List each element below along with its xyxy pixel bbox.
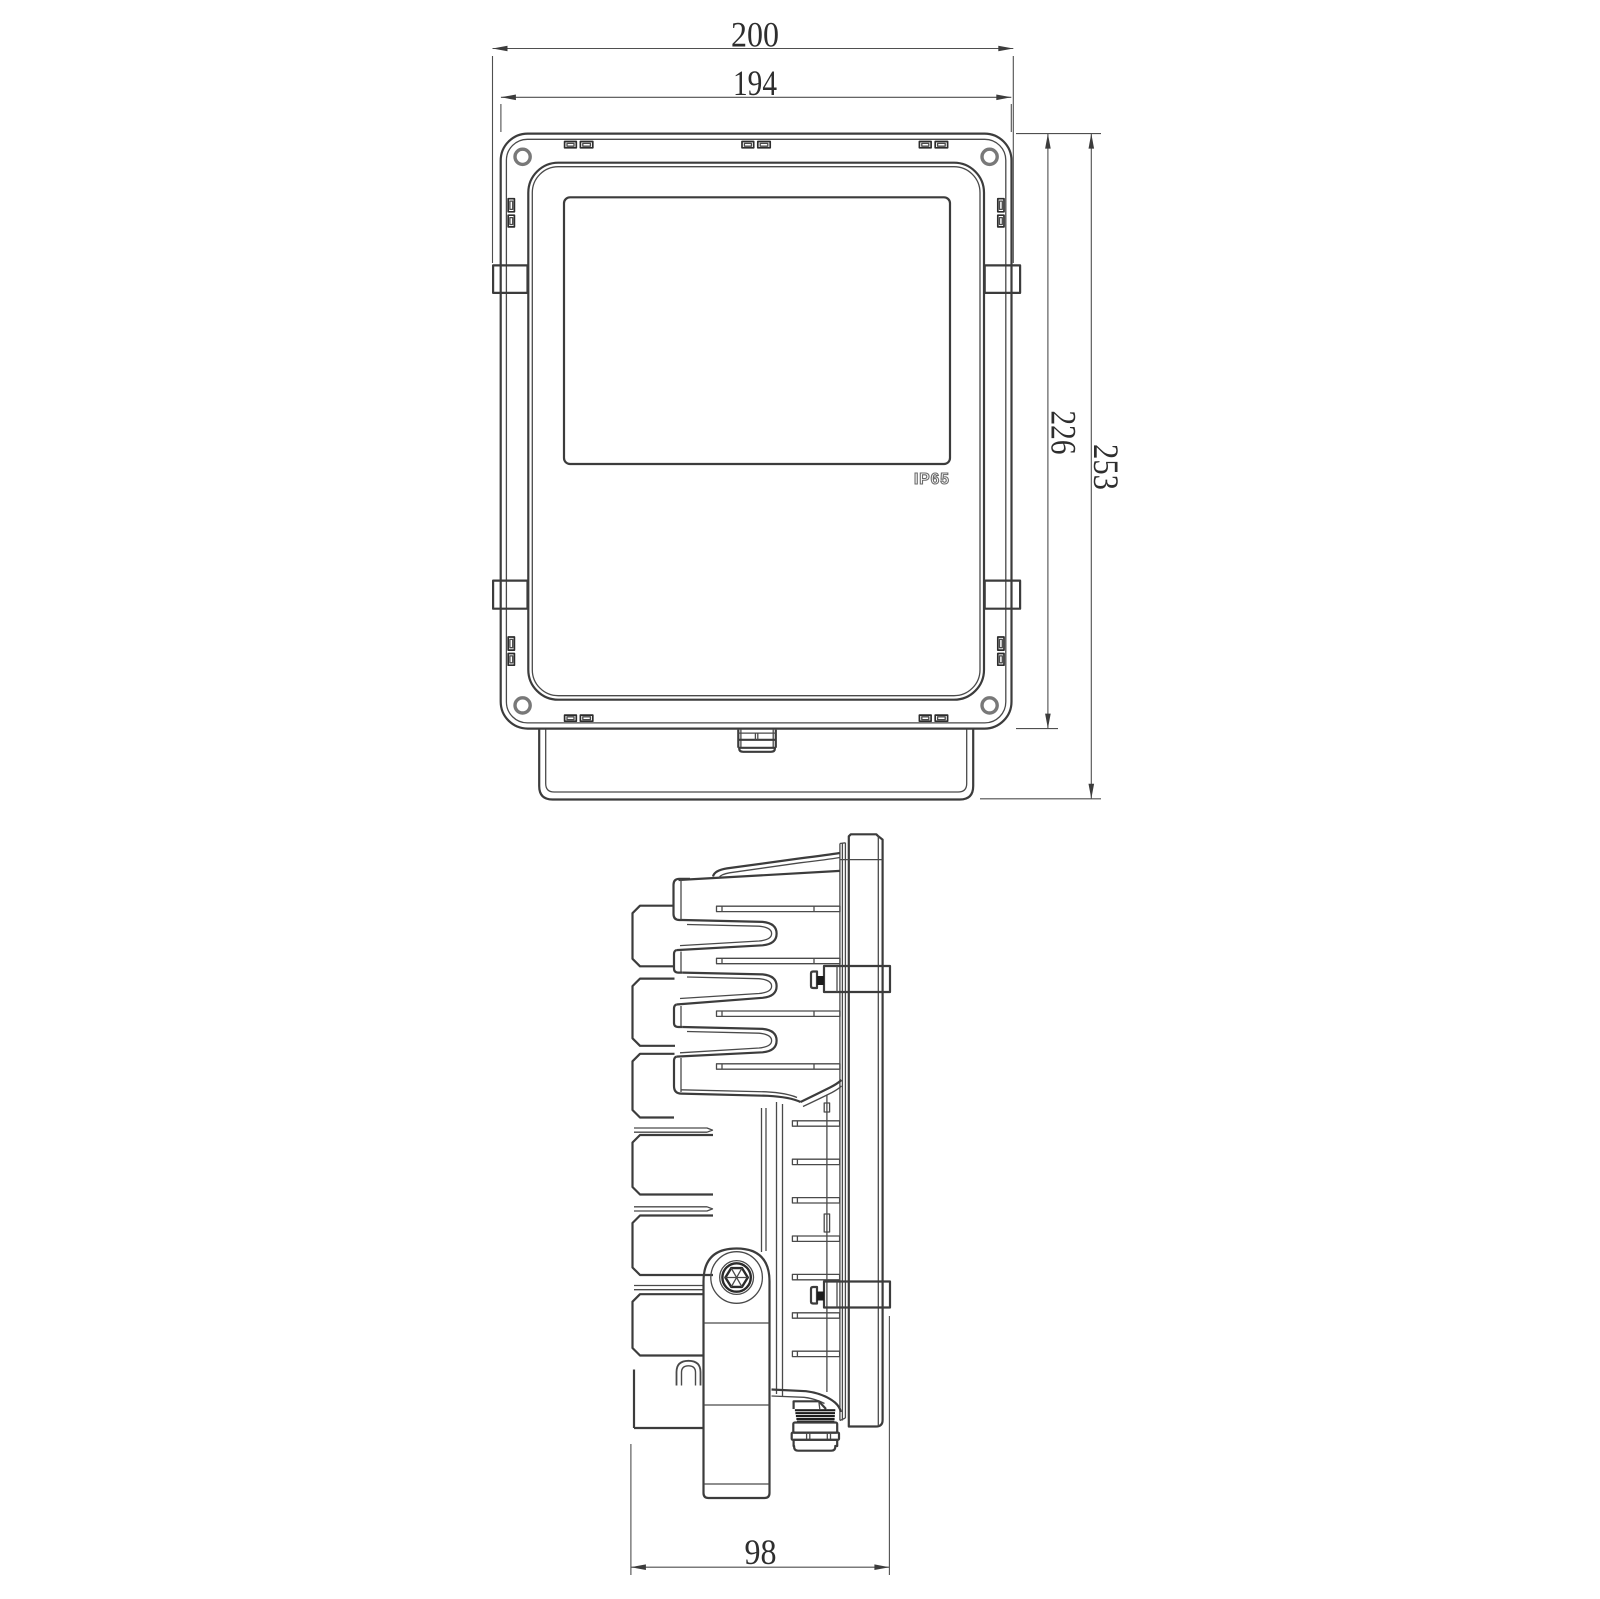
svg-text:253: 253 [1086,444,1126,490]
svg-text:200: 200 [731,15,779,55]
svg-text:IP65: IP65 [914,471,950,488]
svg-text:98: 98 [745,1532,777,1572]
svg-text:194: 194 [733,63,777,103]
svg-text:226: 226 [1044,411,1084,455]
